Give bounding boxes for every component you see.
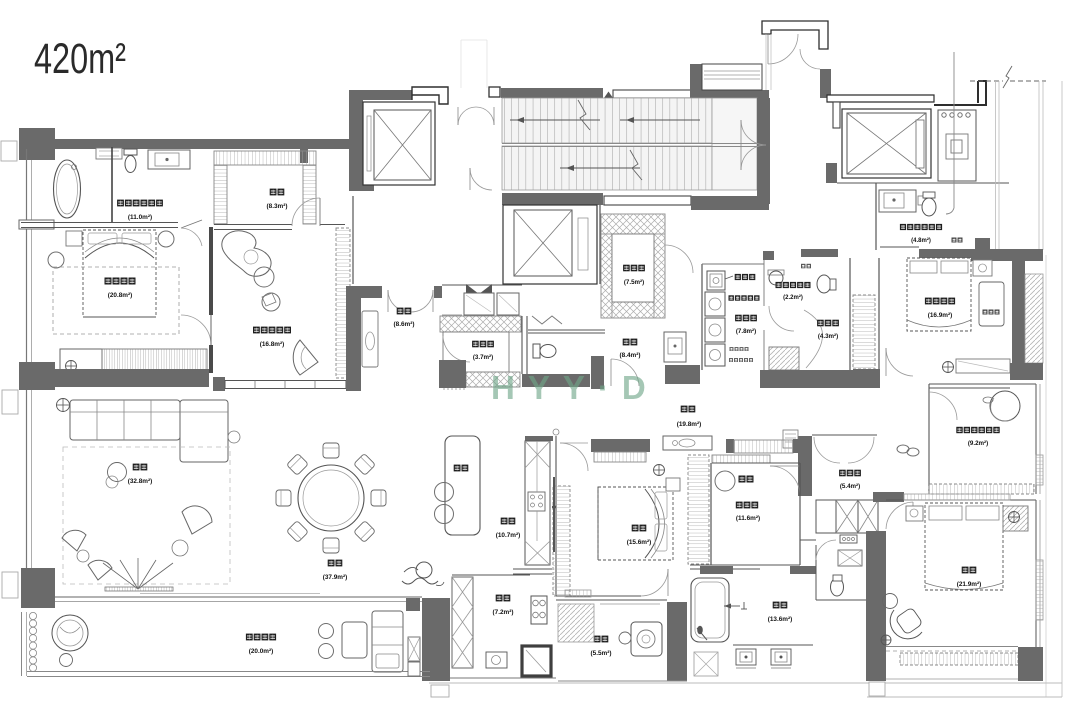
svg-text:(11.6m²): (11.6m²) bbox=[736, 515, 760, 522]
svg-text:(10.7m²): (10.7m²) bbox=[496, 532, 521, 539]
svg-text:(2.2m²): (2.2m²) bbox=[783, 294, 803, 301]
svg-text:(8.6m²): (8.6m²) bbox=[394, 321, 415, 328]
svg-text:(8.4m²): (8.4m²) bbox=[620, 352, 641, 359]
svg-text:(3.7m²): (3.7m²) bbox=[473, 354, 493, 361]
svg-text:(19.8m²): (19.8m²) bbox=[677, 421, 702, 428]
svg-text:(15.6m²): (15.6m²) bbox=[627, 539, 652, 546]
svg-text:(7.5m²): (7.5m²) bbox=[624, 279, 644, 286]
svg-text:(4.8m²): (4.8m²) bbox=[911, 237, 931, 244]
svg-text:420m²: 420m² bbox=[34, 35, 126, 83]
svg-text:(20.8m²): (20.8m²) bbox=[108, 292, 133, 299]
svg-text:(7.2m²): (7.2m²) bbox=[493, 609, 514, 616]
svg-text:(5.4m²): (5.4m²) bbox=[840, 483, 860, 490]
svg-text:(8.3m²): (8.3m²) bbox=[267, 203, 288, 210]
svg-text:(16.8m²): (16.8m²) bbox=[260, 341, 285, 348]
svg-text:(11.0m²): (11.0m²) bbox=[128, 214, 152, 221]
svg-text:(13.6m²): (13.6m²) bbox=[768, 616, 793, 623]
svg-text:(20.0m²): (20.0m²) bbox=[249, 648, 274, 655]
svg-text:(7.8m²): (7.8m²) bbox=[736, 328, 756, 335]
svg-text:(32.8m²): (32.8m²) bbox=[128, 478, 153, 485]
svg-text:(21.9m²): (21.9m²) bbox=[957, 581, 982, 588]
svg-text:(16.9m²): (16.9m²) bbox=[928, 312, 953, 319]
svg-text:(5.5m²): (5.5m²) bbox=[591, 650, 612, 657]
svg-text:(37.9m²): (37.9m²) bbox=[323, 574, 348, 581]
svg-text:HYY·D: HYY·D bbox=[491, 369, 659, 406]
svg-text:(9.2m²): (9.2m²) bbox=[968, 440, 988, 447]
svg-text:(4.3m²): (4.3m²) bbox=[818, 333, 838, 340]
